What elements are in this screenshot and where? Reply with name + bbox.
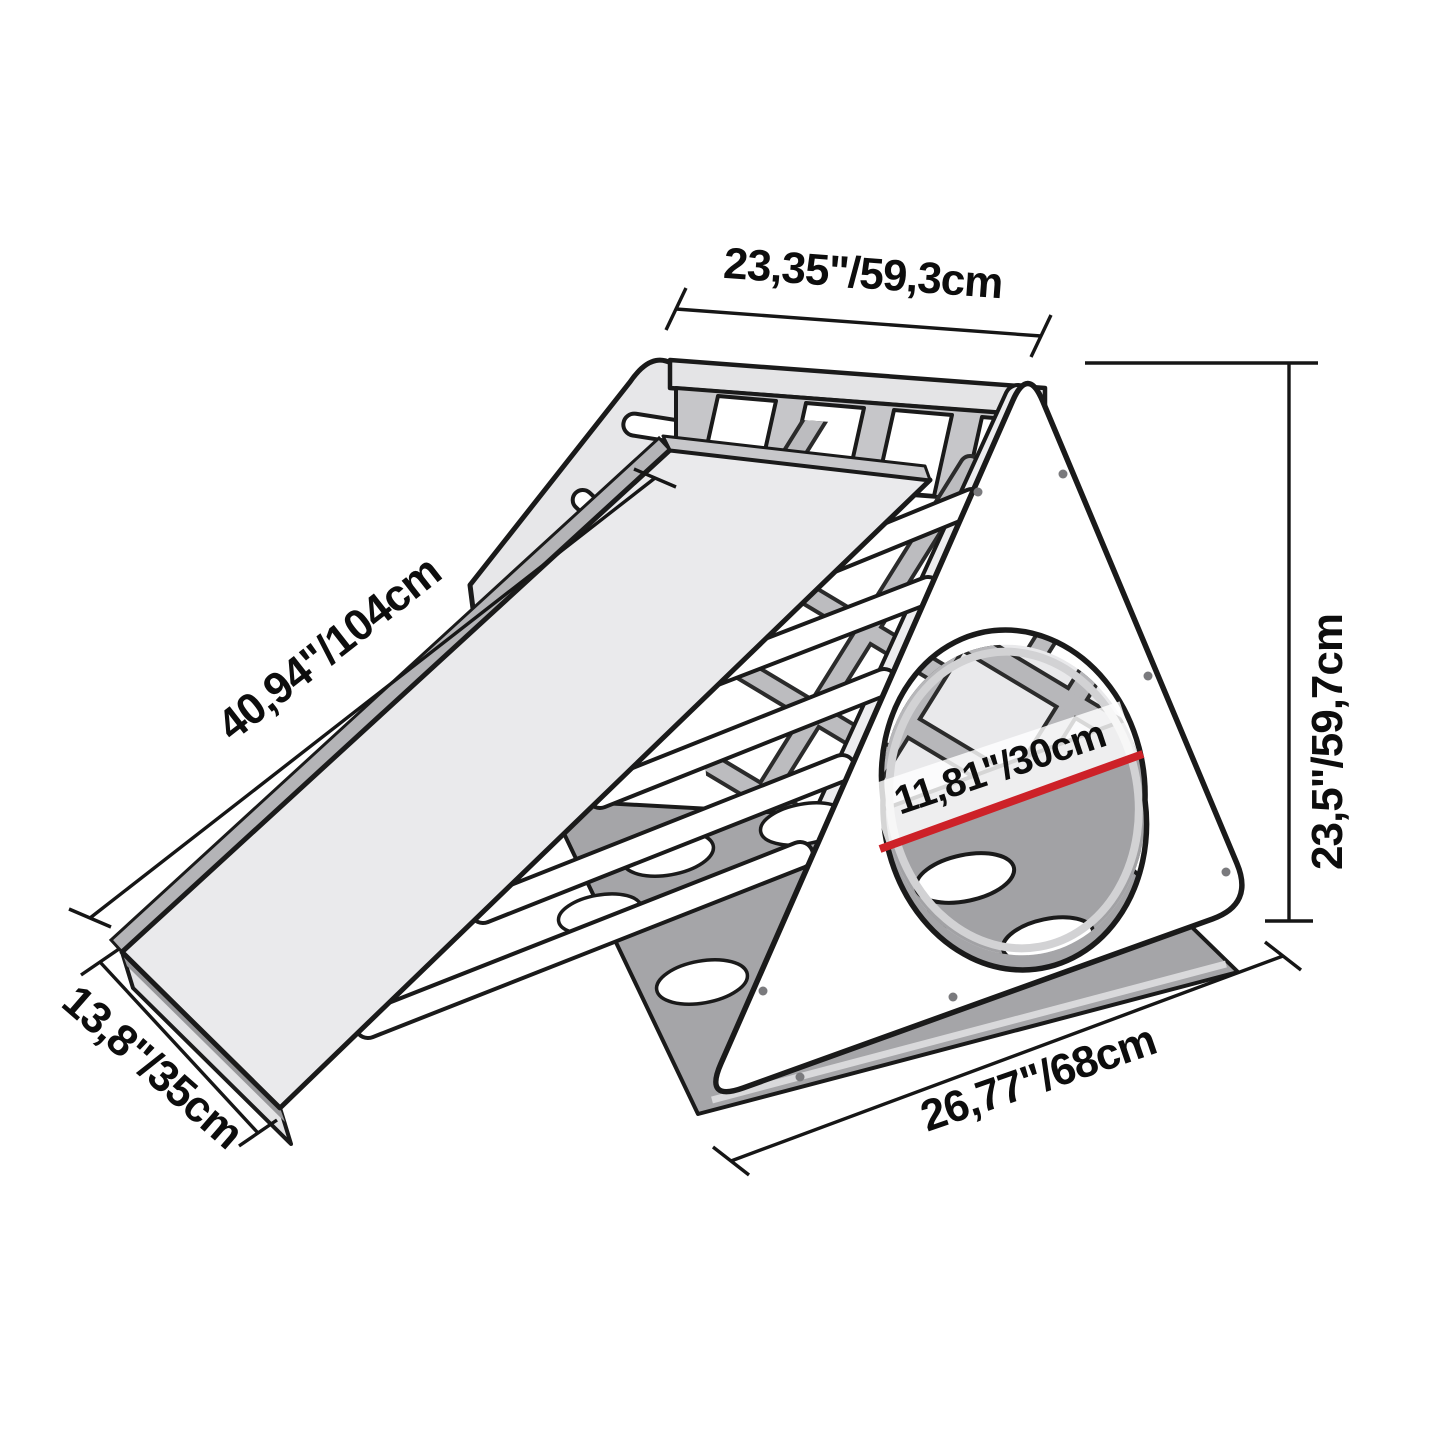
dimension-tick [81,949,119,975]
diagram-page: 23,35"/59,3cm 40,94"/104cm 13,8"/35cm 26… [0,0,1445,1445]
dimension-line [676,309,1041,336]
dimension-tick [713,1147,749,1175]
dimension-tick [69,909,111,927]
dimension-tick [1265,942,1301,970]
dimension-label-top-width: 23,35"/59,3cm [722,239,1004,308]
triangle-dimension-diagram: 23,35"/59,3cm 40,94"/104cm 13,8"/35cm 26… [0,0,1445,1445]
dimension-label-height: 23,5"/59,7cm [1303,614,1352,870]
